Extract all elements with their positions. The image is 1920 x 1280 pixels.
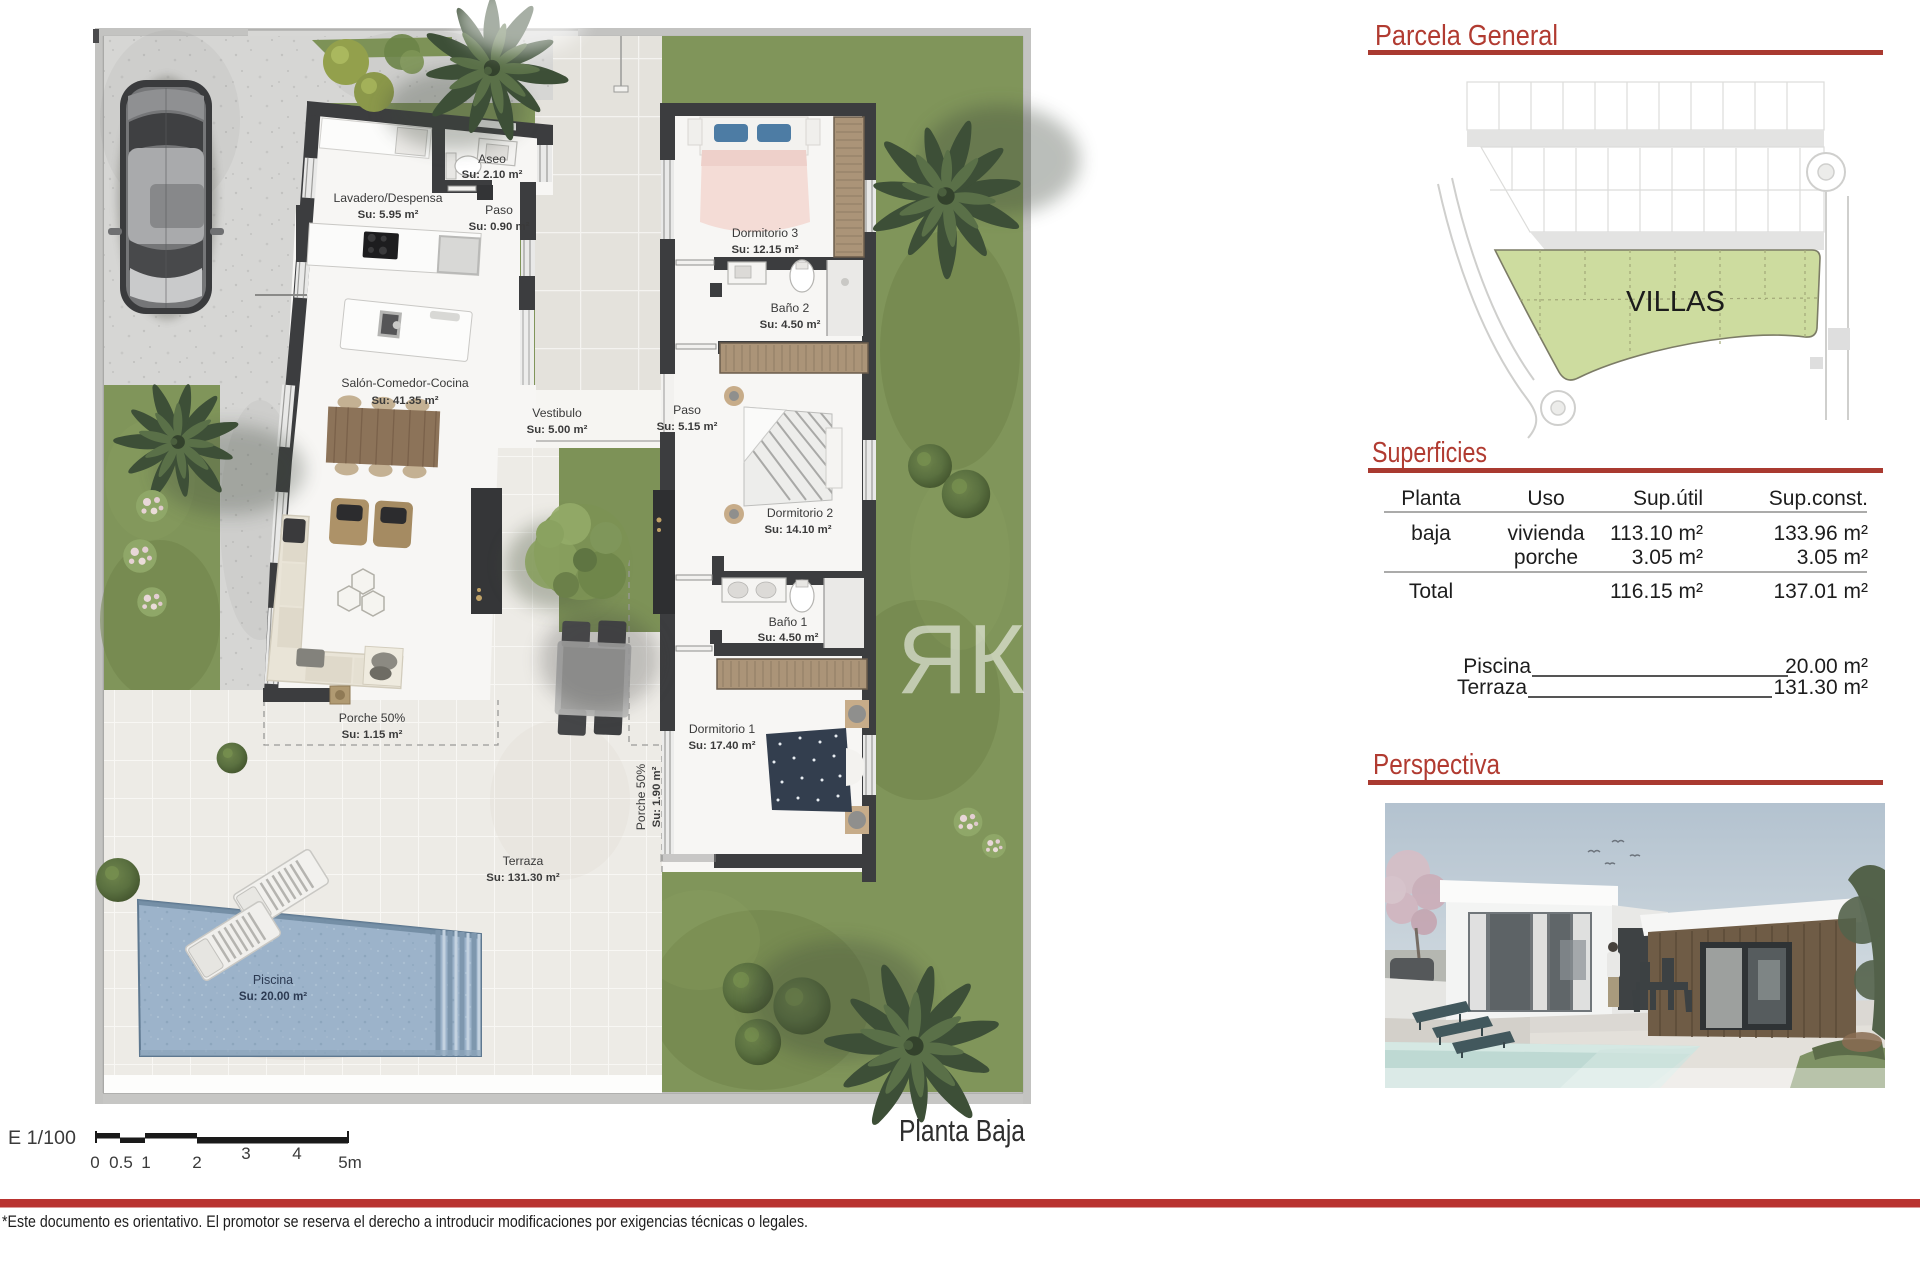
svg-text:Su: 41.35 m²: Su: 41.35 m²: [371, 395, 438, 407]
svg-text:137.01 m²: 137.01 m²: [1773, 580, 1868, 603]
svg-text:Dormitorio 2: Dormitorio 2: [767, 506, 834, 520]
svg-text:Paso: Paso: [485, 203, 513, 217]
svg-text:Sup.const.: Sup.const.: [1769, 487, 1868, 510]
svg-text:Piscina: Piscina: [1463, 655, 1531, 678]
svg-text:Su: 20.00 m²: Su: 20.00 m²: [239, 990, 307, 1003]
svg-text:Perspectiva: Perspectiva: [1373, 749, 1501, 781]
svg-text:113.10 m²: 113.10 m²: [1610, 522, 1703, 545]
svg-text:ЯК: ЯК: [897, 604, 1025, 714]
svg-text:Su: 2.10 m²: Su: 2.10 m²: [462, 169, 523, 181]
svg-text:Su: 17.40 m²: Su: 17.40 m²: [688, 740, 755, 752]
svg-text:Su: 4.50 m²: Su: 4.50 m²: [758, 632, 819, 644]
svg-text:Total: Total: [1409, 580, 1453, 603]
svg-text:Salón-Comedor-Cocina: Salón-Comedor-Cocina: [341, 376, 469, 390]
svg-text:Su: 5.95 m²: Su: 5.95 m²: [358, 209, 419, 221]
svg-text:Parcela General: Parcela General: [1375, 20, 1558, 52]
svg-text:Porche 50%: Porche 50%: [339, 711, 406, 725]
svg-text:Aseo: Aseo: [478, 152, 506, 166]
svg-text:3.05 m²: 3.05 m²: [1632, 546, 1703, 569]
svg-text:Terraza: Terraza: [1457, 676, 1527, 699]
svg-text:2: 2: [192, 1153, 201, 1172]
svg-text:Dormitorio 3: Dormitorio 3: [732, 226, 799, 240]
svg-text:Su: 131.30 m²: Su: 131.30 m²: [486, 872, 560, 884]
svg-text:Su: 1.15 m²: Su: 1.15 m²: [342, 729, 403, 741]
svg-text:porche: porche: [1514, 546, 1578, 569]
svg-text:116.15 m²: 116.15 m²: [1610, 580, 1703, 603]
svg-text:Dormitorio 1: Dormitorio 1: [689, 722, 756, 736]
svg-text:Su: 14.10 m²: Su: 14.10 m²: [764, 524, 831, 536]
svg-text:Su: 5.15 m²: Su: 5.15 m²: [657, 421, 718, 433]
svg-text:*Este documento es orientativo: *Este documento es orientativo. El promo…: [2, 1212, 808, 1231]
svg-text:4: 4: [292, 1144, 301, 1163]
svg-text:Porche 50%: Porche 50%: [634, 764, 648, 831]
svg-text:Vestibulo: Vestibulo: [532, 406, 582, 420]
svg-text:Su: 4.50 m²: Su: 4.50 m²: [760, 319, 821, 331]
svg-text:5m: 5m: [338, 1153, 362, 1172]
svg-text:Sup.útil: Sup.útil: [1633, 487, 1703, 510]
svg-text:20.00 m²: 20.00 m²: [1785, 655, 1868, 678]
svg-text:Planta: Planta: [1401, 487, 1461, 510]
svg-text:vivienda: vivienda: [1507, 522, 1584, 545]
svg-text:Baño 2: Baño 2: [771, 301, 810, 315]
svg-text:E 1/100: E 1/100: [8, 1128, 76, 1149]
svg-text:Baño 1: Baño 1: [769, 615, 808, 629]
svg-text:Piscina: Piscina: [253, 973, 293, 987]
svg-text:133.96 m²: 133.96 m²: [1773, 522, 1868, 545]
svg-text:3: 3: [241, 1144, 250, 1163]
svg-text:Lavadero/Despensa: Lavadero/Despensa: [333, 191, 442, 205]
svg-text:Su: 1.90 m²: Su: 1.90 m²: [651, 766, 663, 827]
svg-text:Superficies: Superficies: [1372, 437, 1487, 469]
svg-text:0.5: 0.5: [109, 1153, 133, 1172]
svg-text:Uso: Uso: [1527, 487, 1564, 510]
svg-text:Su: 12.15 m²: Su: 12.15 m²: [731, 244, 798, 256]
svg-text:1: 1: [141, 1153, 150, 1172]
svg-text:0: 0: [90, 1153, 99, 1172]
svg-text:Paso: Paso: [673, 403, 701, 417]
svg-text:VILLAS: VILLAS: [1626, 286, 1725, 318]
svg-text:3.05 m²: 3.05 m²: [1797, 546, 1868, 569]
svg-text:Su: 0.90 m²: Su: 0.90 m²: [469, 221, 530, 233]
svg-text:baja: baja: [1411, 522, 1451, 545]
svg-text:131.30 m²: 131.30 m²: [1773, 676, 1868, 699]
svg-text:Su: 5.00 m²: Su: 5.00 m²: [527, 424, 588, 436]
svg-text:Terraza: Terraza: [503, 854, 544, 868]
svg-text:Planta Baja: Planta Baja: [899, 1113, 1026, 1148]
